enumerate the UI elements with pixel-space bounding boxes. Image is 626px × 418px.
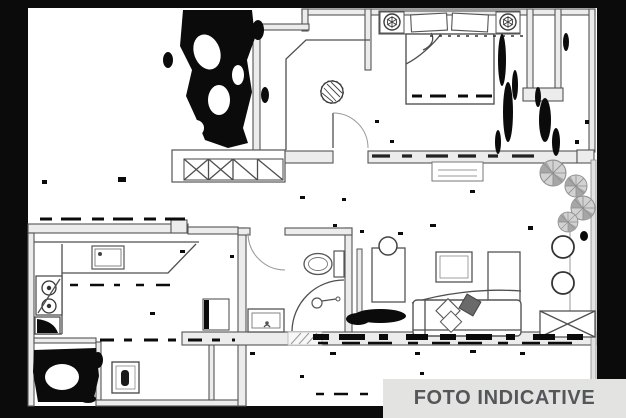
coffee-table [436, 252, 472, 282]
tall-cabinet [203, 299, 229, 330]
floor-plan-page: FOTO INDICATIVE [0, 0, 626, 418]
corner-cabinet-icon [35, 317, 60, 334]
crossed-window-icon [540, 311, 595, 337]
hallway [286, 40, 370, 150]
lamp-icon-right [500, 14, 516, 30]
washbasin-icon [248, 309, 284, 332]
toilet-icon [304, 251, 344, 277]
bench-under-wall [432, 162, 483, 181]
balcony [540, 160, 595, 337]
kitchen [34, 242, 229, 334]
balcony-plant-icon [558, 212, 578, 232]
chair-circle [552, 272, 574, 294]
photo-indicative-banner: FOTO INDICATIVE [383, 379, 626, 418]
shower-icon [292, 280, 344, 331]
bathroom [248, 233, 344, 332]
laundry [112, 362, 139, 393]
chair-circle [552, 236, 574, 258]
washing-machine-icon [112, 362, 139, 393]
balcony-plant-icon [565, 175, 587, 197]
pillow-left [411, 13, 448, 32]
stove-icon [36, 276, 62, 315]
walls [28, 9, 596, 406]
bath-door-arc [248, 233, 285, 270]
photo-indicative-label: FOTO INDICATIVE [414, 387, 596, 410]
tv-cabinet [372, 237, 405, 302]
pillow-right [452, 13, 489, 32]
kitchen-sink-icon [92, 246, 124, 269]
double-bed [406, 34, 494, 104]
window-railing [172, 150, 285, 182]
hall-plant-icon [320, 80, 343, 103]
hall-door-arc [333, 113, 368, 148]
lamp-icon-left [384, 14, 400, 30]
floor-plan-drawing [0, 0, 626, 418]
balcony-plant-icon [540, 160, 566, 186]
